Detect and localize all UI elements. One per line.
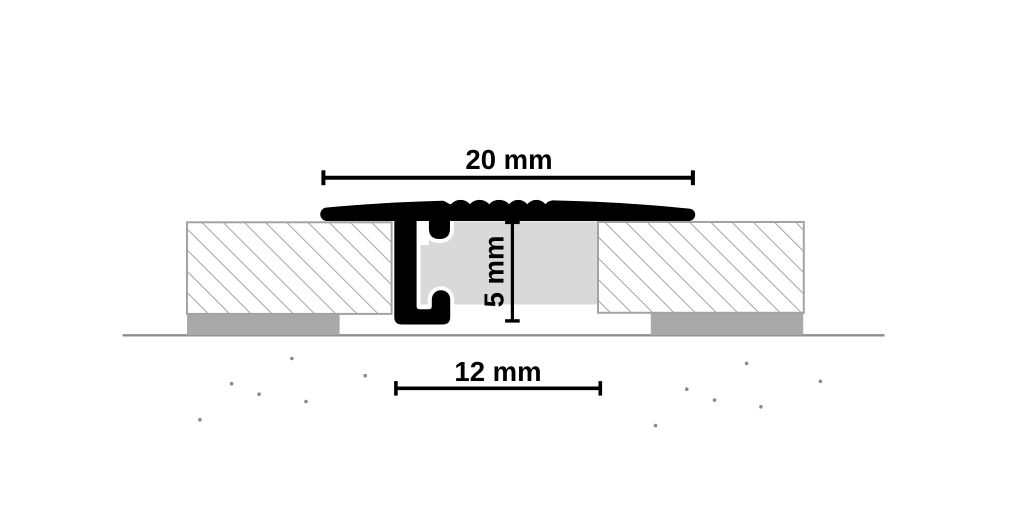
svg-text:12 mm: 12 mm xyxy=(454,356,541,387)
svg-text:20 mm: 20 mm xyxy=(465,144,552,175)
svg-text:5 mm: 5 mm xyxy=(479,236,510,308)
